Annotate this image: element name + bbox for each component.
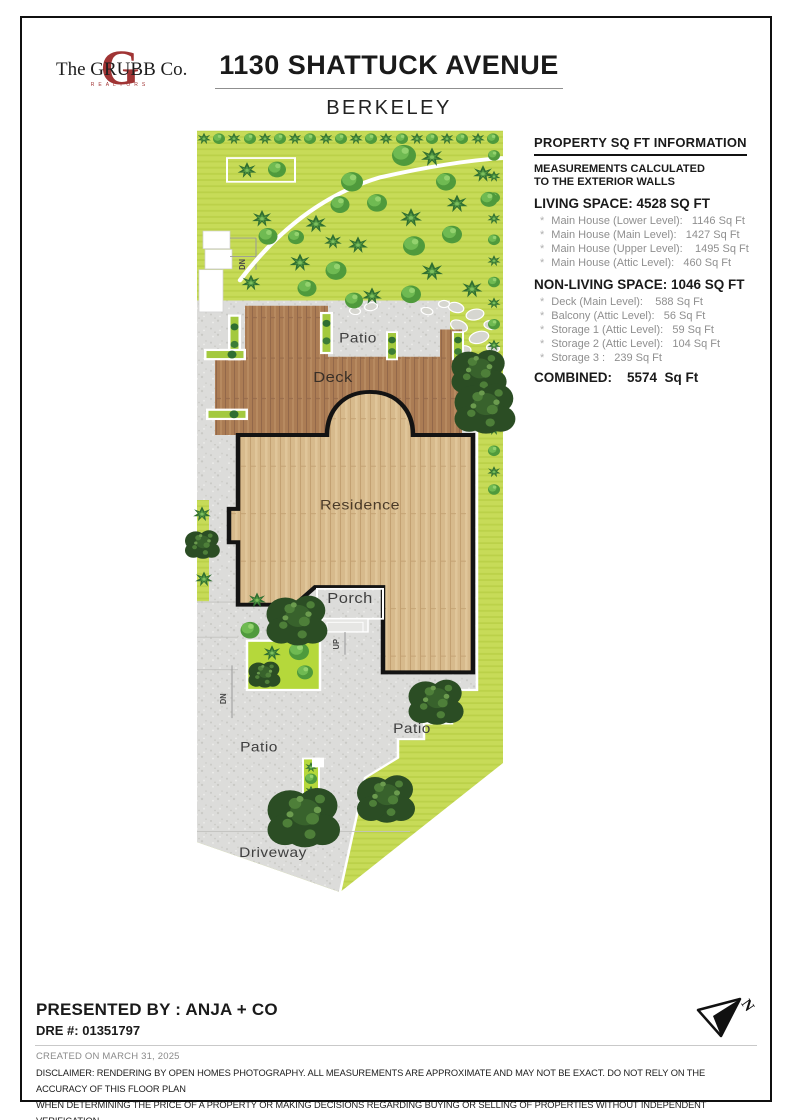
flyer-page: G The GRUBB Co. REALTORS 1130 SHATTUCK A… (0, 0, 792, 1120)
presented-by: PRESENTED BY : ANJA + CO (36, 1000, 278, 1020)
nonliving-item-text: Storage 3 : 239 Sq Ft (551, 352, 662, 364)
living-item-text: Main House (Upper Level): 1495 Sq Ft (551, 243, 748, 255)
bullet: * (540, 257, 544, 269)
living-item: *Main House (Upper Level): 1495 Sq Ft (534, 242, 772, 256)
garden-bed (247, 641, 320, 690)
north-arrow: N (694, 994, 758, 1050)
label-driveway: Driveway (239, 846, 307, 861)
bullet: * (540, 229, 544, 241)
dre-number: DRE #: 01351797 (36, 1023, 140, 1038)
disclaimer-line2: WHEN DETERMINING THE PRICE OF A PROPERTY… (36, 1097, 746, 1120)
living-space-header: LIVING SPACE: 4528 SQ FT (534, 196, 772, 211)
living-item-text: Main House (Lower Level): 1146 Sq Ft (551, 215, 745, 227)
nonliving-space-header: NON-LIVING SPACE: 1046 SQ FT (534, 277, 772, 292)
info-title: PROPERTY SQ FT INFORMATION (534, 135, 747, 156)
label-deck: Deck (313, 370, 353, 386)
nonliving-item: *Storage 3 : 239 Sq Ft (534, 351, 772, 365)
living-item-text: Main House (Main Level): 1427 Sq Ft (551, 229, 739, 241)
living-item: *Main House (Main Level): 1427 Sq Ft (534, 228, 772, 242)
bullet: * (540, 296, 544, 308)
combined-total: COMBINED: 5574 Sq Ft (534, 370, 772, 385)
page-subtitle: BERKELEY (0, 97, 778, 120)
nonliving-item-text: Storage 1 (Attic Level): 59 Sq Ft (551, 324, 714, 336)
dn-upper-label: DN (238, 259, 248, 270)
disclaimer: DISCLAIMER: RENDERING BY OPEN HOMES PHOT… (36, 1065, 746, 1120)
living-item: *Main House (Lower Level): 1146 Sq Ft (534, 214, 772, 228)
bullet: * (540, 215, 544, 227)
combined-label: COMBINED: (534, 370, 612, 385)
footer-divider (35, 1045, 757, 1046)
bullet: * (540, 324, 544, 336)
bullet: * (540, 243, 544, 255)
label-patio-top: Patio (339, 331, 377, 346)
label-residence: Residence (320, 498, 400, 514)
nonliving-item: *Deck (Main Level): 588 Sq Ft (534, 295, 772, 309)
living-item-text: Main House (Attic Level): 460 Sq Ft (551, 257, 731, 269)
bullet: * (540, 310, 544, 322)
label-patio-left: Patio (240, 740, 278, 755)
up-label: UP (332, 638, 342, 649)
nonliving-item-text: Storage 2 (Attic Level): 104 Sq Ft (551, 338, 720, 350)
nonliving-item-text: Balcony (Attic Level): 56 Sq Ft (551, 310, 705, 322)
property-info-panel: PROPERTY SQ FT INFORMATION MEASUREMENTS … (534, 134, 772, 385)
nonliving-item: *Storage 1 (Attic Level): 59 Sq Ft (534, 323, 772, 337)
info-note-line2: TO THE EXTERIOR WALLS (534, 176, 772, 189)
info-note-line1: MEASUREMENTS CALCULATED (534, 163, 772, 176)
nonliving-item-text: Deck (Main Level): 588 Sq Ft (551, 296, 703, 308)
header: 1130 SHATTUCK AVENUE BERKELEY (0, 50, 792, 120)
label-patio-right: Patio (393, 722, 431, 737)
bullet: * (540, 352, 544, 364)
created-date: CREATED ON MARCH 31, 2025 (36, 1051, 180, 1062)
dn-lower-label: DN (219, 693, 229, 704)
nonliving-item: *Balcony (Attic Level): 56 Sq Ft (534, 309, 772, 323)
nonliving-item: *Storage 2 (Attic Level): 104 Sq Ft (534, 337, 772, 351)
disclaimer-line1: DISCLAIMER: RENDERING BY OPEN HOMES PHOT… (36, 1065, 746, 1097)
site-plan: DN DN UP Patio Deck Residence Porch Pati… (185, 122, 520, 1010)
combined-value: 5574 Sq Ft (627, 370, 698, 385)
label-porch: Porch (327, 591, 373, 607)
living-item: *Main House (Attic Level): 460 Sq Ft (534, 256, 772, 270)
page-title: 1130 SHATTUCK AVENUE (215, 50, 563, 89)
bullet: * (540, 338, 544, 350)
